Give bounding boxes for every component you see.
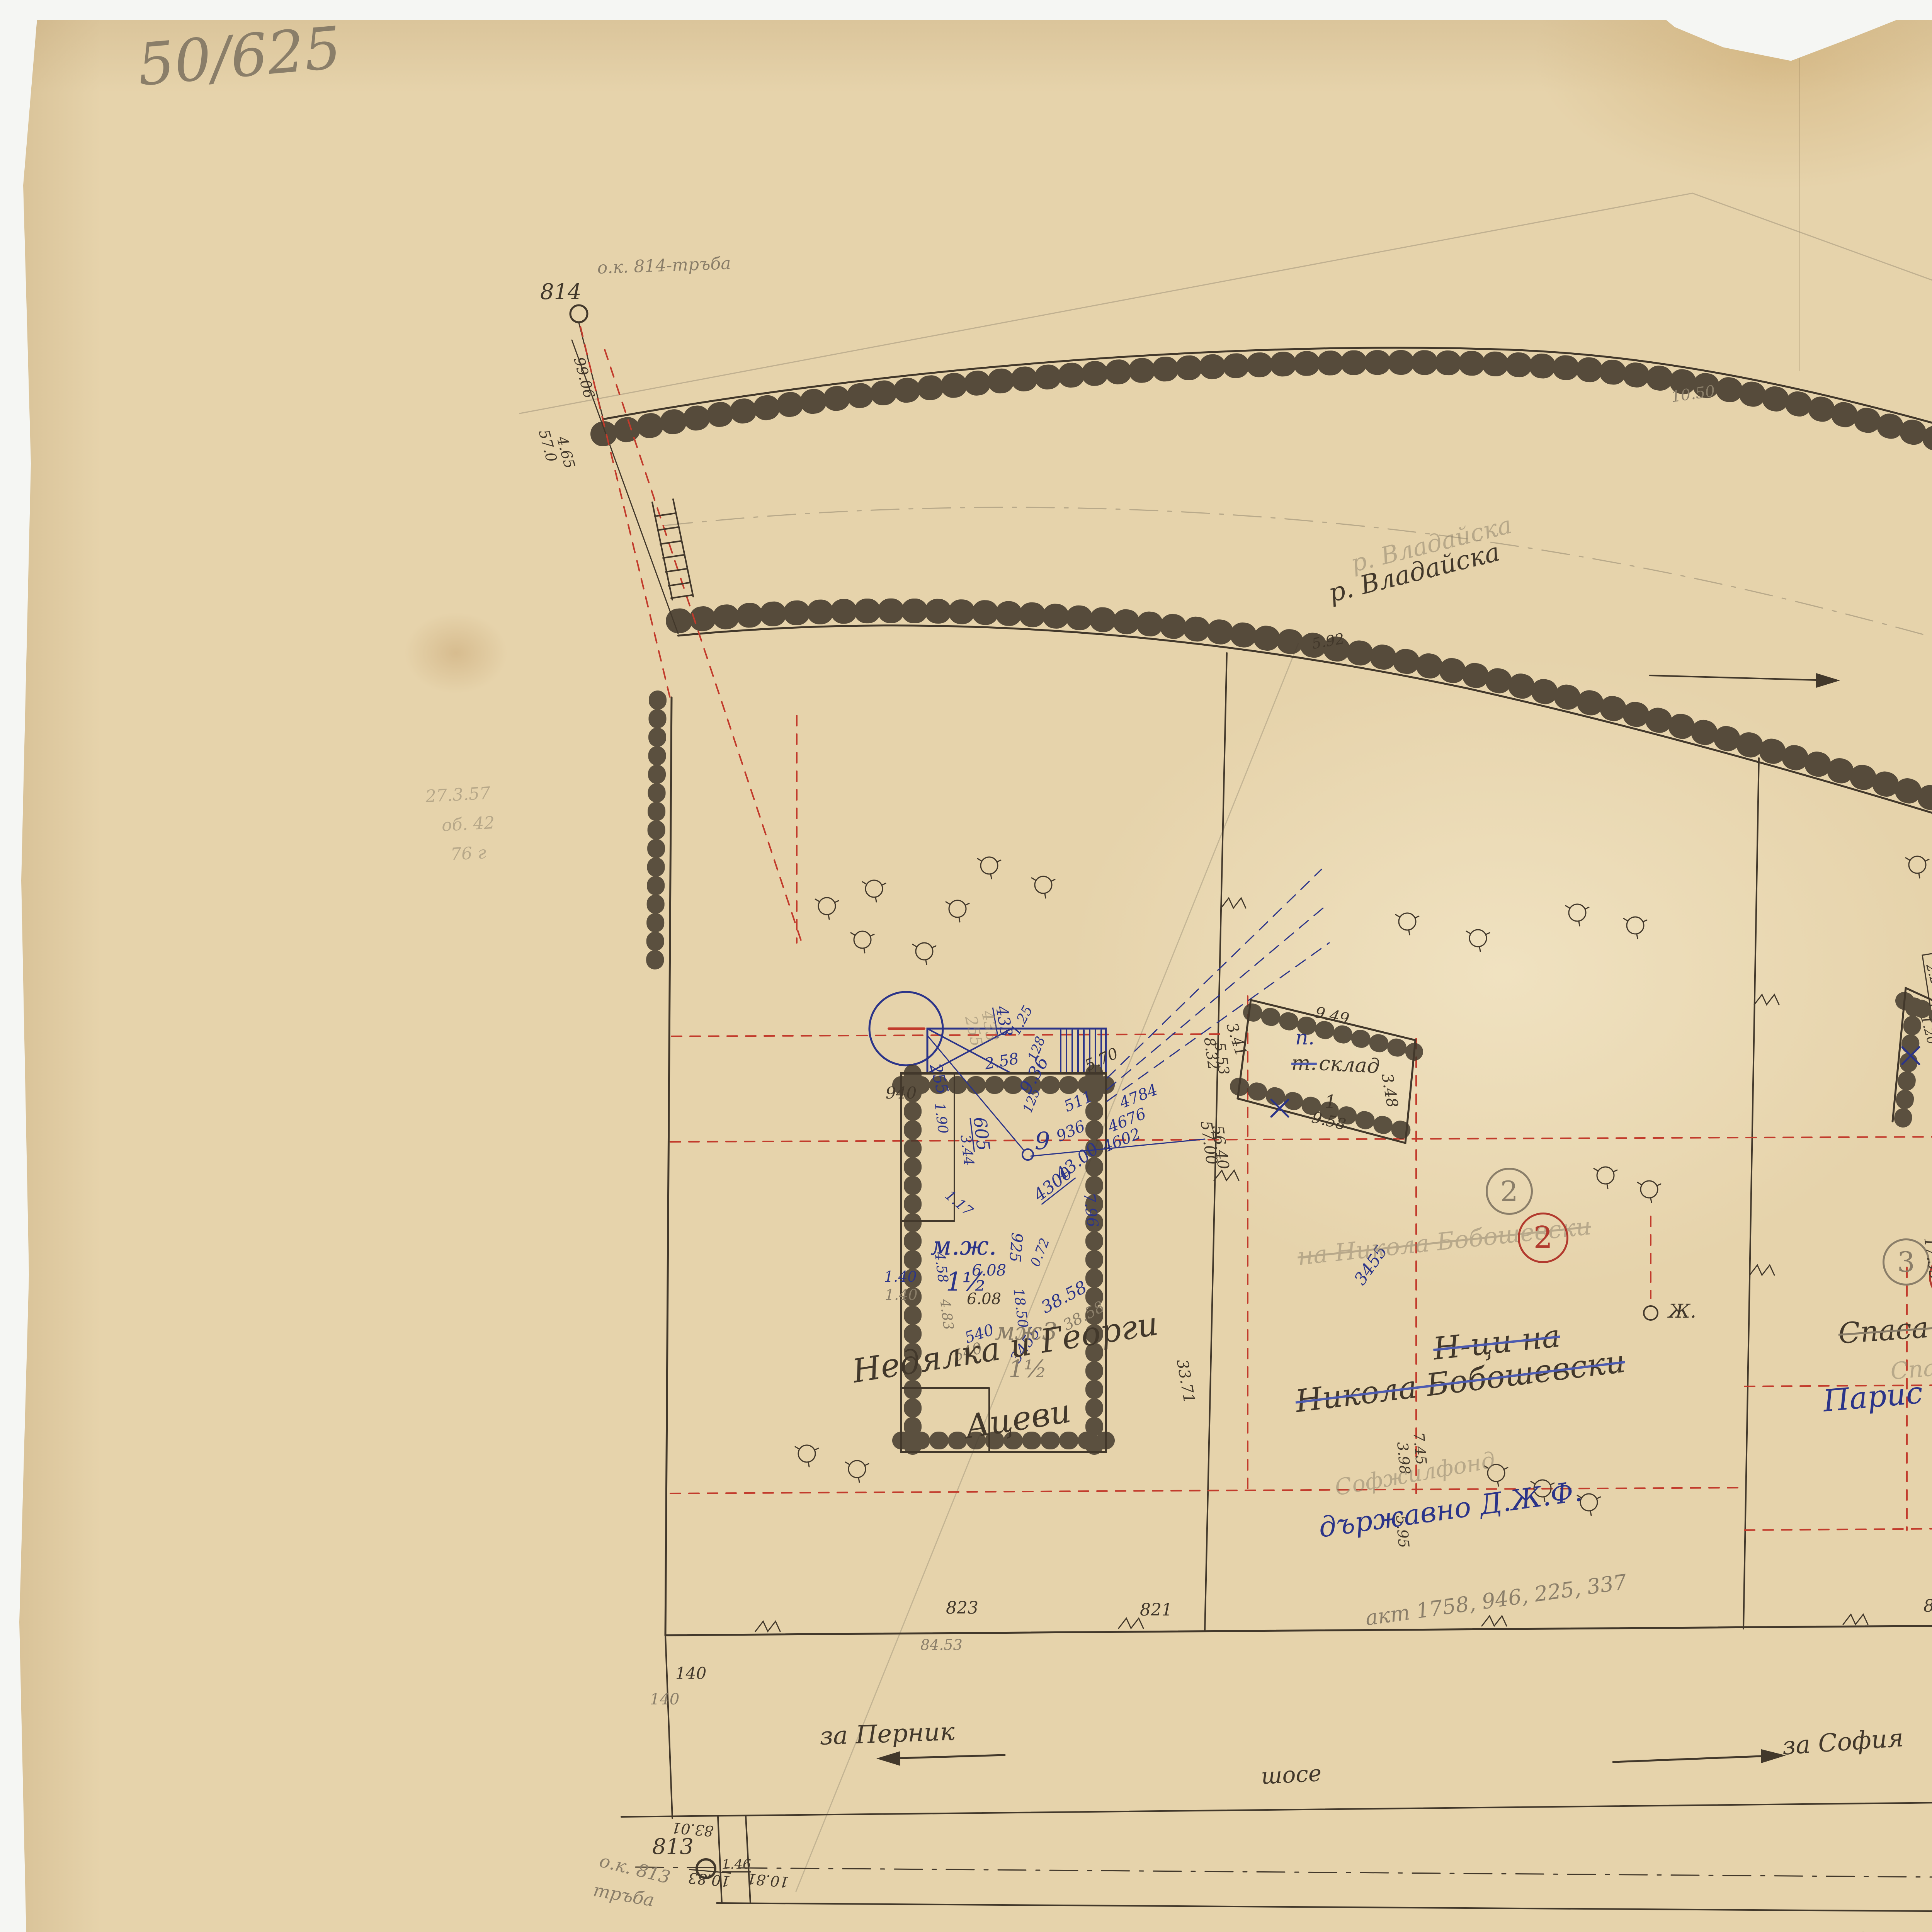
map-label: 3.44: [958, 1134, 976, 1167]
map-label: 10.81: [747, 1871, 790, 1889]
tree-symbol: [1638, 1181, 1661, 1202]
tree-symbol: [1566, 904, 1589, 926]
tree-symbol: [1032, 876, 1055, 898]
tree-symbol: [862, 880, 886, 902]
tree-symbol: [795, 1445, 818, 1467]
map-label: о.к. 814-тръба: [597, 255, 731, 277]
map-label: 925: [1007, 1232, 1025, 1263]
map-label: 140: [675, 1665, 706, 1682]
tree-symbol: [978, 857, 1001, 879]
map-label: 9: [1035, 1129, 1050, 1153]
map-label: 1: [1325, 1093, 1337, 1111]
map-label: 84.53: [920, 1638, 963, 1652]
map-label: 10.83: [688, 1871, 731, 1889]
map-label: 1.46: [722, 1858, 751, 1871]
tree-symbol: [1396, 913, 1419, 935]
map-label: 7.96: [1081, 1192, 1100, 1228]
map-label: 813: [652, 1836, 694, 1858]
map-label: 4.83: [937, 1298, 955, 1331]
tree-symbol: [815, 898, 838, 919]
map-label: 823: [946, 1600, 978, 1617]
map-linework: [0, 0, 1932, 1932]
map-label: 50/625: [135, 19, 344, 94]
map-label: склад: [1318, 1053, 1380, 1077]
map-sheet: 50/625814о.к. 814-тръба99.0657.04.6527.3…: [0, 0, 1932, 1932]
map-label: шосе: [1260, 1762, 1322, 1787]
map-label: 1.40: [885, 1287, 918, 1302]
tree-symbol: [1624, 917, 1647, 939]
map-label: 819: [1923, 1598, 1932, 1615]
map-label: п.: [1295, 1028, 1315, 1048]
tree-symbol: [845, 1461, 869, 1482]
map-label: об. 42: [441, 815, 495, 834]
map-label: за Перник: [819, 1719, 955, 1749]
map-label: 1½: [946, 1269, 987, 1295]
map-label: 1.90: [932, 1102, 950, 1134]
tree-symbol: [851, 931, 874, 953]
map-label: м.ж.: [930, 1233, 997, 1259]
map-label: Ж.: [1668, 1301, 1696, 1321]
tree-symbol: [1906, 856, 1929, 878]
tree-symbol: [1466, 930, 1490, 951]
map-label: 814: [540, 281, 582, 303]
map-label: 940: [886, 1085, 917, 1101]
map-label: 821: [1140, 1602, 1172, 1619]
map-label: т.: [1291, 1053, 1317, 1073]
parcel-number-badge: 2: [1518, 1213, 1568, 1263]
tree-symbol: [913, 943, 936, 964]
map-label: 1.40: [884, 1269, 917, 1284]
map-label: 140: [650, 1692, 679, 1707]
parcel-number-badge: 2: [1486, 1168, 1533, 1215]
map-label: 76 г: [450, 844, 486, 863]
tree-symbol: [946, 900, 969, 922]
map-label: 27.3.57: [425, 785, 491, 805]
map-label: 5.53: [1212, 1041, 1231, 1076]
map-label: 83.01: [671, 1820, 714, 1838]
tree-symbol: [1594, 1167, 1617, 1189]
